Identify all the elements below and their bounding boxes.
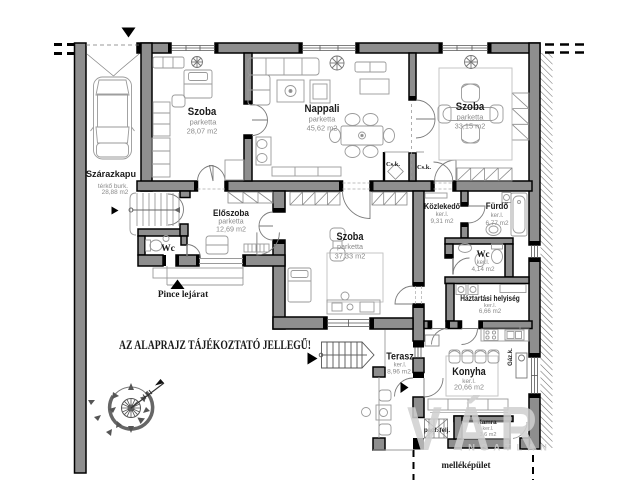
svg-text:Háztartási helyiség: Háztartási helyiség — [460, 294, 520, 303]
svg-text:Előszoba: Előszoba — [213, 208, 250, 219]
svg-text:33,15 m2: 33,15 m2 — [455, 122, 486, 131]
svg-text:parketta: parketta — [337, 242, 363, 251]
svg-text:ker.l.: ker.l. — [491, 213, 504, 219]
svg-text:parketta: parketta — [457, 113, 485, 122]
svg-text:28,88 m2: 28,88 m2 — [102, 189, 129, 196]
svg-text:Konyha: Konyha — [452, 366, 486, 378]
svg-text:6,66 m2: 6,66 m2 — [479, 308, 502, 315]
svg-text:45,62 m2: 45,62 m2 — [307, 124, 338, 133]
svg-text:37,33 m2: 37,33 m2 — [335, 252, 366, 261]
svg-text:Wc: Wc — [477, 249, 490, 259]
svg-text:Nappali: Nappali — [305, 103, 340, 115]
svg-text:20,66 m2: 20,66 m2 — [454, 383, 484, 392]
svg-text:Gáz.k.: Gáz.k. — [508, 348, 514, 366]
svg-text:parketta: parketta — [309, 115, 337, 124]
svg-text:Terasz: Terasz — [386, 352, 414, 363]
svg-text:8,96 m2: 8,96 m2 — [387, 369, 411, 376]
svg-text:9,31 m2: 9,31 m2 — [430, 218, 454, 225]
svg-text:Közlekedő: Közlekedő — [424, 202, 460, 211]
svg-text:INGATLAN: INGATLAN — [460, 443, 552, 454]
svg-text:Fürdő: Fürdő — [486, 201, 509, 212]
svg-text:12,69 m2: 12,69 m2 — [216, 225, 246, 234]
svg-text:28,07 m2: 28,07 m2 — [187, 127, 218, 136]
svg-text:6,77 m2: 6,77 m2 — [485, 220, 509, 227]
svg-text:Szárazkapu: Szárazkapu — [86, 169, 136, 179]
svg-text:Cs.k.: Cs.k. — [417, 164, 431, 171]
svg-text:Szoba: Szoba — [456, 101, 485, 113]
svg-text:Pince lejárat: Pince lejárat — [158, 290, 209, 300]
svg-text:4,14 m2: 4,14 m2 — [471, 266, 495, 273]
svg-text:Cs.k.: Cs.k. — [386, 161, 400, 168]
svg-text:parketta: parketta — [190, 118, 218, 127]
svg-text:AZ ALAPRAJZ TÁJÉKOZTATÓ JELLEG: AZ ALAPRAJZ TÁJÉKOZTATÓ JELLEGŰ! — [119, 337, 311, 352]
svg-text:VÁR: VÁR — [407, 395, 548, 464]
svg-text:Wc: Wc — [161, 244, 175, 254]
svg-text:Szoba: Szoba — [188, 106, 217, 118]
